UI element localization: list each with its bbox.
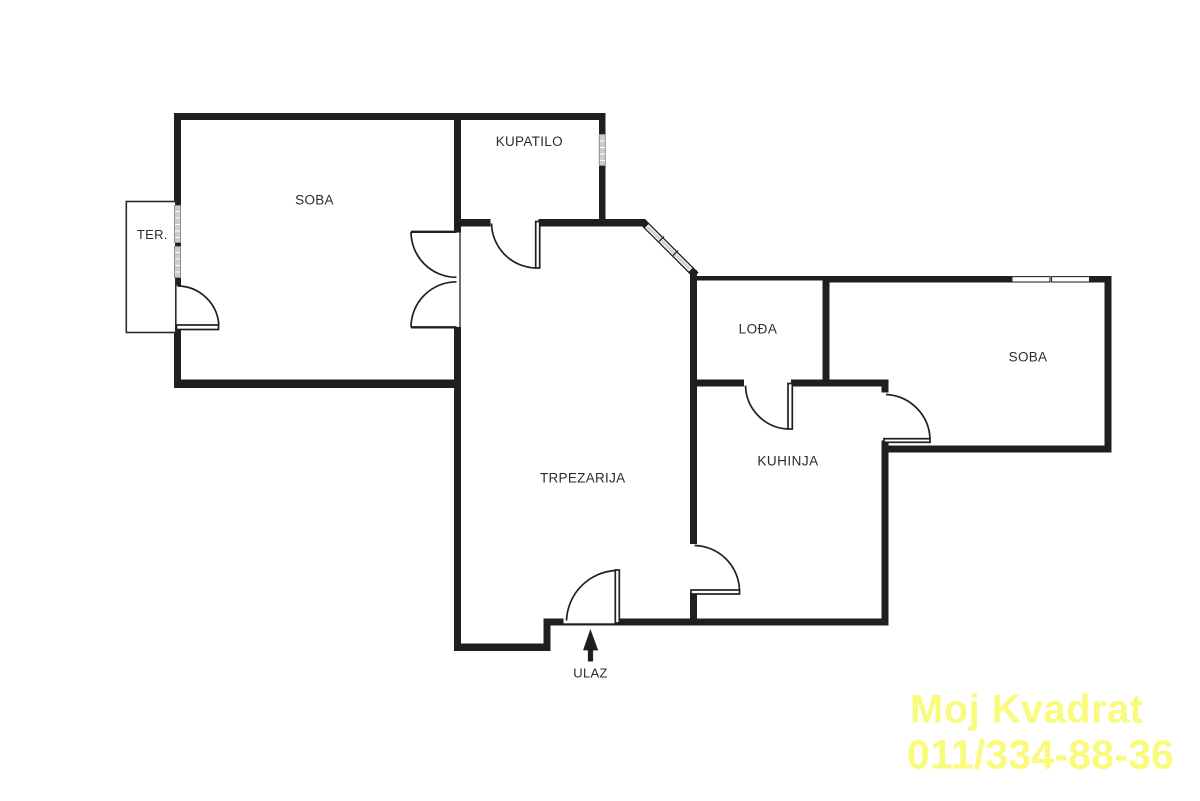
svg-text:KUPATILO: KUPATILO [496, 134, 563, 149]
svg-text:SOBA: SOBA [295, 193, 334, 208]
svg-text:TRPEZARIJA: TRPEZARIJA [540, 471, 626, 486]
svg-text:011/334-88-36: 011/334-88-36 [907, 732, 1174, 778]
svg-text:TER.: TER. [137, 227, 168, 242]
svg-text:Moj Kvadrat: Moj Kvadrat [910, 688, 1143, 732]
svg-text:KUHINJA: KUHINJA [757, 454, 818, 469]
svg-text:LOĐA: LOĐA [739, 322, 778, 337]
svg-text:ULAZ: ULAZ [573, 666, 607, 681]
svg-text:SOBA: SOBA [1009, 350, 1048, 365]
